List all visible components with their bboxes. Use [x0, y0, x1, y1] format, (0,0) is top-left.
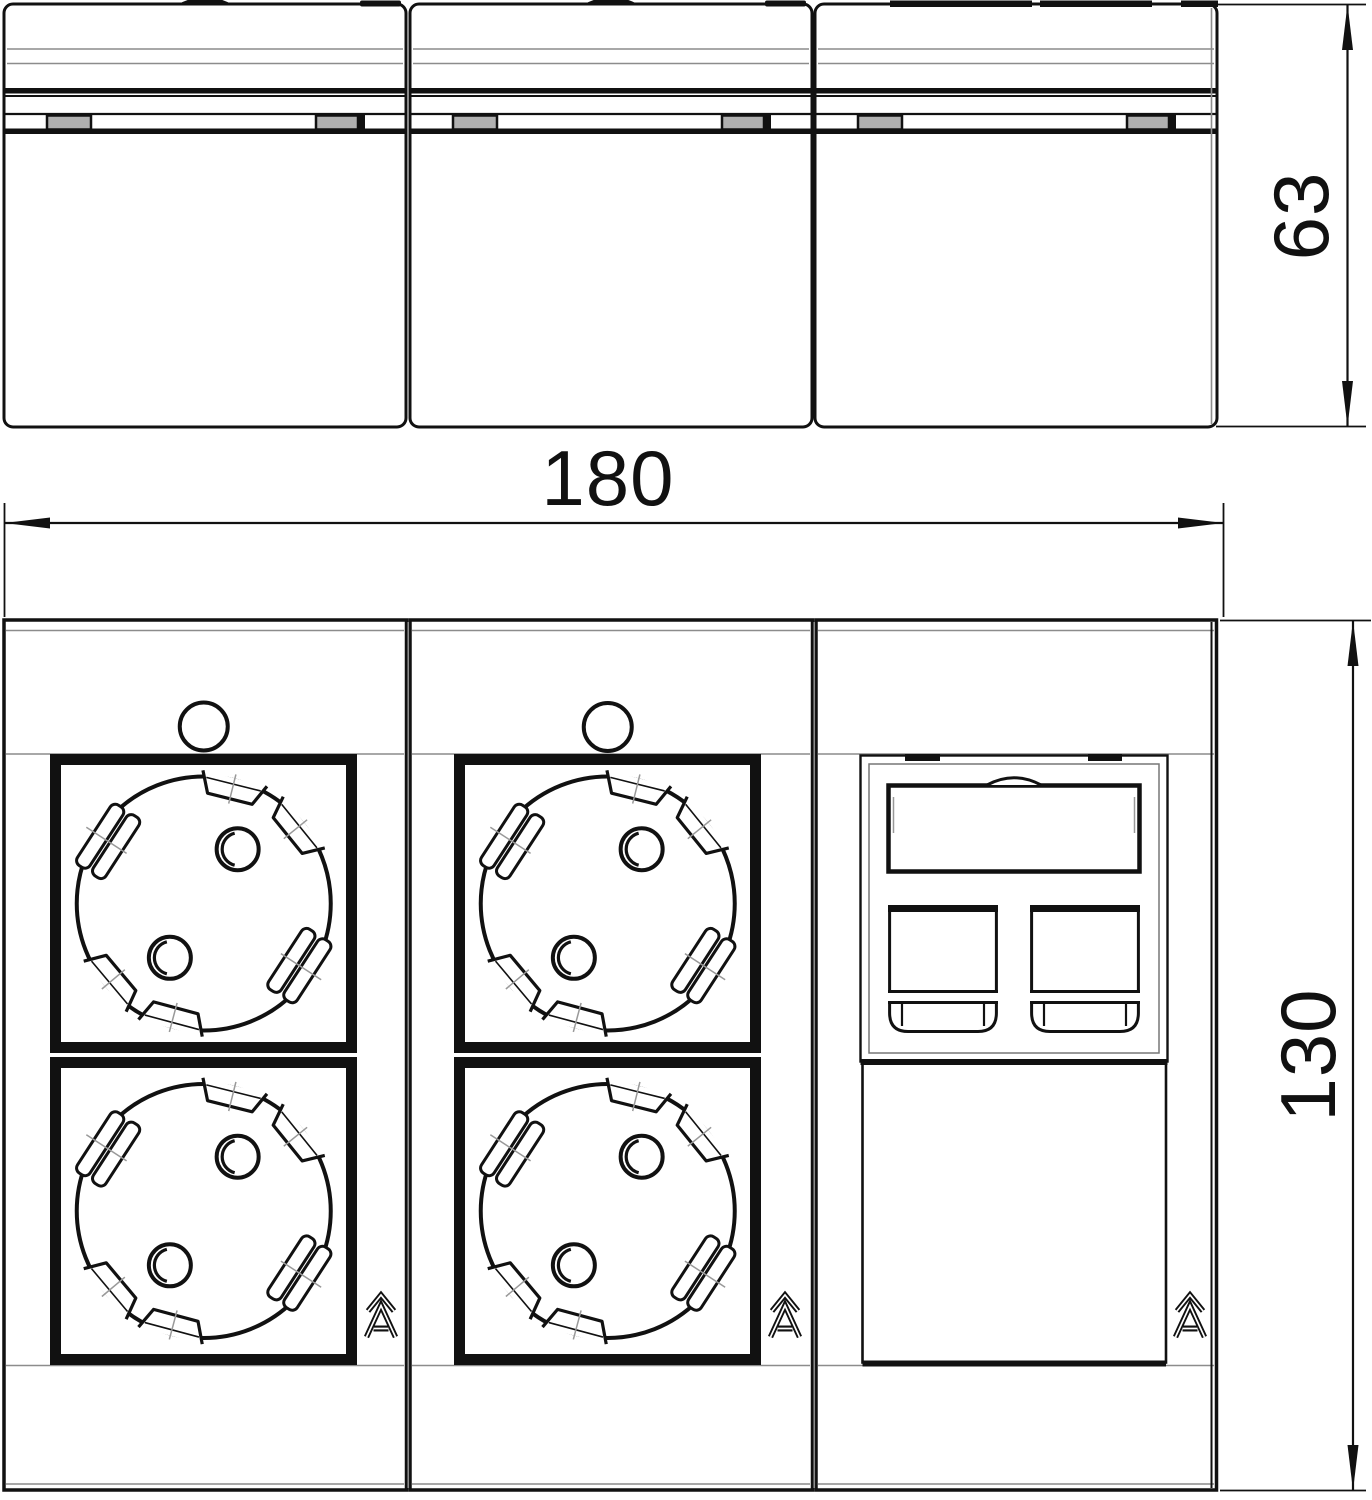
- technical-drawing: 180 63 130: [0, 0, 1372, 1500]
- mounting-screw: [584, 703, 632, 751]
- dimension-height-value: 130: [1263, 988, 1354, 1121]
- data-insert-plate: [861, 754, 1168, 1062]
- label-window: [889, 786, 1140, 872]
- arrowhead-right: [1178, 518, 1224, 529]
- top-view: [4, 0, 1218, 427]
- arrowhead-up: [1348, 621, 1359, 667]
- drawing-canvas: [0, 0, 1372, 1500]
- arrowhead-left: [5, 518, 51, 529]
- arrowhead-down: [1342, 381, 1353, 427]
- front-module-socket-1: [4, 620, 407, 1490]
- blank-cover: [861, 1062, 1168, 1364]
- latch-bar: [1040, 1, 1152, 8]
- latch-bar: [890, 1, 1032, 8]
- top-view-module-1: [4, 0, 406, 427]
- arrowhead-down: [1348, 1445, 1359, 1491]
- latch-bump: [584, 0, 638, 5]
- dimension-width-value: 180: [541, 433, 674, 524]
- mounting-screw: [180, 703, 228, 751]
- dimension-width-label: 180: [488, 433, 728, 523]
- latch-tab: [765, 1, 806, 7]
- latch-bump: [178, 0, 232, 5]
- front-view: [4, 620, 1217, 1490]
- dimension-height-label: 130: [1263, 935, 1353, 1175]
- front-module-socket-2: [410, 620, 813, 1490]
- top-view-module-3: [815, 1, 1218, 428]
- dimension-depth-value: 63: [1256, 172, 1347, 261]
- latch-tab: [1181, 1, 1218, 8]
- dimension-depth-label: 63: [1256, 96, 1346, 336]
- arrowhead-up: [1342, 5, 1353, 51]
- front-module-data: [816, 620, 1217, 1490]
- latch-tab: [360, 1, 401, 7]
- top-view-module-2: [410, 0, 812, 427]
